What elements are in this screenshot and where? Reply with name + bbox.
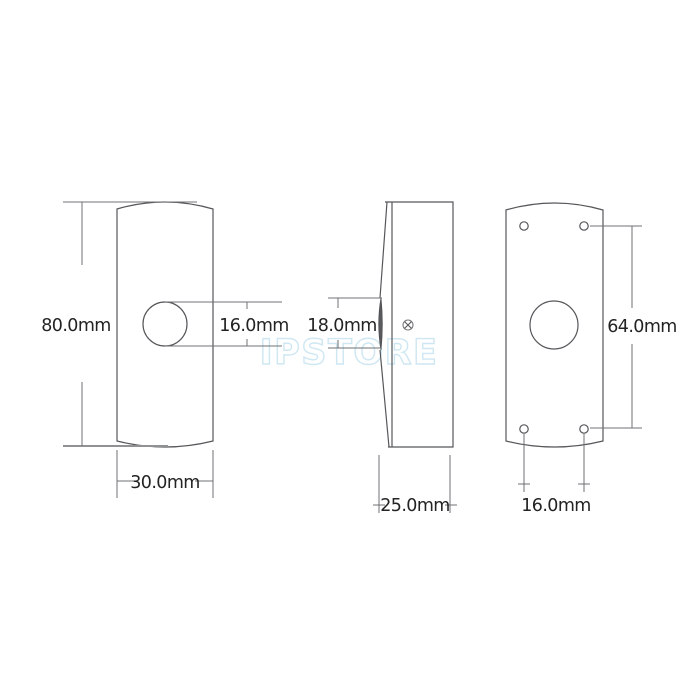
dimension-label-hole-vertical-spacing: 64.0mm: [607, 317, 676, 337]
back-view: [506, 203, 603, 447]
front-button-circle: [143, 302, 187, 346]
dimension-label-height: 80.0mm: [41, 316, 110, 336]
side-view: [379, 202, 453, 447]
dimension-label-width: 30.0mm: [130, 473, 199, 493]
technical-drawing-page: IPSTORE 80.0mm 16.0mm 30.0mm: [0, 0, 700, 700]
screw-icon: [403, 320, 413, 330]
store-watermark: IPSTORE: [260, 333, 439, 373]
front-body-outline: [117, 202, 213, 447]
screw-hole-top-left: [520, 222, 528, 230]
front-view: [117, 202, 213, 447]
dim-back-hole-horizontal-spacing: 16.0mm: [518, 434, 591, 516]
side-front-face-upper: [380, 202, 387, 298]
back-center-hole: [530, 301, 578, 349]
product-dimension-diagram: IPSTORE 80.0mm 16.0mm 30.0mm: [0, 0, 700, 700]
dimension-label-depth: 25.0mm: [380, 496, 449, 516]
side-body-outline: [385, 202, 453, 447]
dimension-label-button-diameter: 16.0mm: [219, 316, 288, 336]
dimension-label-button-height: 18.0mm: [307, 316, 376, 336]
dim-front-width: 30.0mm: [117, 450, 213, 498]
back-body-outline: [506, 203, 603, 447]
dimension-label-hole-horizontal-spacing: 16.0mm: [521, 496, 590, 516]
screw-hole-bottom-left: [520, 425, 528, 433]
dim-side-depth: 25.0mm: [373, 455, 457, 516]
screw-hole-bottom-right: [580, 425, 588, 433]
screw-hole-top-right: [580, 222, 588, 230]
dim-front-height: 80.0mm: [41, 202, 197, 446]
